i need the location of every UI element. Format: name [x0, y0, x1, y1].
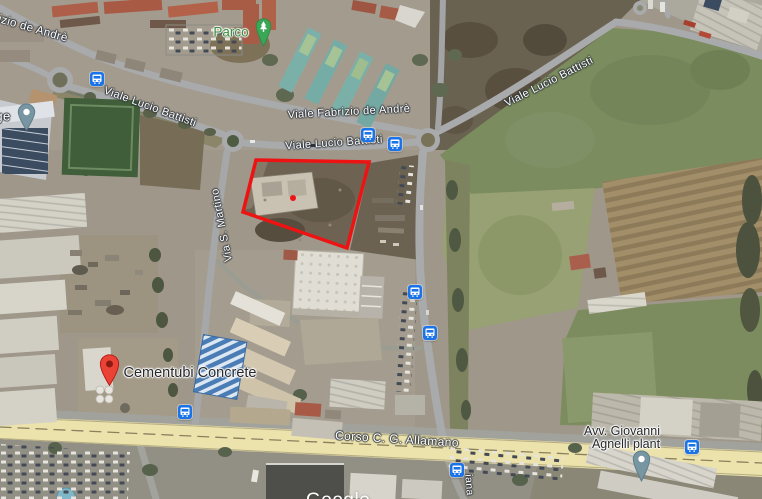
red-map-pin-cementubi[interactable] [99, 353, 120, 393]
street-label-partial-west: ge [0, 109, 11, 124]
road-label-partial-south: iana [462, 474, 475, 496]
bus-stop-icon[interactable] [423, 326, 437, 340]
bus-stop-icon[interactable] [361, 128, 375, 142]
bus-stop-icon[interactable] [450, 463, 464, 477]
poi-pin-west-edge[interactable] [17, 103, 36, 136]
map-viewport[interactable]: izio de Andrè Viale Lucio Battisti Viale… [0, 0, 762, 499]
poi-label-parco[interactable]: Parco [213, 25, 248, 40]
google-watermark: Google [306, 490, 370, 499]
bus-stop-icon[interactable] [685, 440, 699, 454]
poi-pin-agnelli[interactable] [632, 450, 651, 487]
parcel-boundary[interactable] [243, 160, 369, 248]
bus-stop-icon[interactable] [90, 72, 104, 86]
poi-label-cementubi[interactable]: Cementubi Concrete [124, 365, 257, 381]
poi-label-agnelli-line2[interactable]: Agnelli plant [592, 437, 660, 451]
bus-stop-icon[interactable] [178, 405, 192, 419]
bus-stop-icon[interactable] [388, 137, 402, 151]
parcel-center-dot [290, 195, 296, 201]
park-pin-tree-icon[interactable] [255, 18, 272, 52]
bus-stop-icon[interactable] [408, 285, 422, 299]
poi-label-agnelli-line1[interactable]: Avv. Giovanni [584, 424, 660, 438]
